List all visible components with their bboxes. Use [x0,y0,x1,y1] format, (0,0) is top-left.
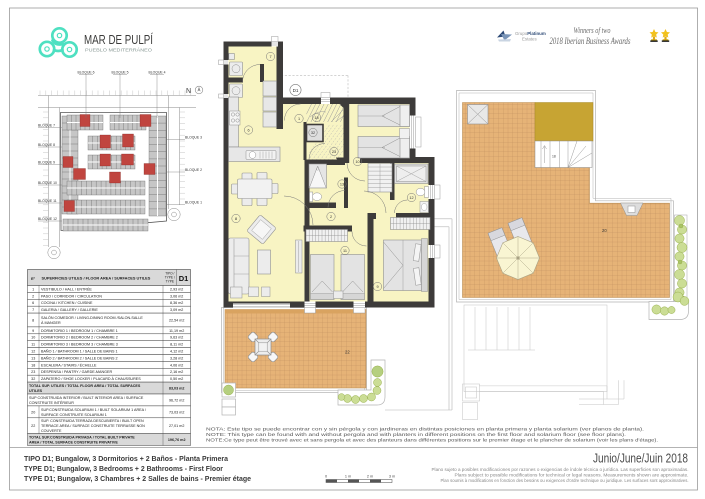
svg-text:10: 10 [31,336,35,340]
svg-text:TYPE D1; Bungalow, 3 Chambres: TYPE D1; Bungalow, 3 Chambres + 2 Salles… [24,476,251,483]
svg-text:2: 2 [32,294,34,298]
svg-text:Plano sujeto a posibles modifi: Plano sujeto a posibles modificaciones p… [432,467,689,472]
svg-text:DORMITORIO 1 / BEDROOM 1 / CHA: DORMITORIO 1 / BEDROOM 1 / CHAMBRE 1 [41,329,118,333]
svg-text:BLOQUE 3: BLOQUE 3 [185,136,202,140]
svg-text:DORMITORIO 2 / BEDROOM 2 / CHA: DORMITORIO 2 / BEDROOM 2 / CHAMBRE 2 [41,336,118,340]
svg-text:9: 9 [32,329,34,333]
svg-text:11,19 m2: 11,19 m2 [169,329,184,333]
svg-text:SUP CONSTRUIDA INTERIOR / BUIL: SUP CONSTRUIDA INTERIOR / BUILT INTERIOR… [29,396,144,400]
svg-text:SUP.CONSTRUIDA SOLARIUM 1 / BU: SUP.CONSTRUIDA SOLARIUM 1 / BUILT SOLARI… [41,408,147,412]
svg-text:D1: D1 [293,88,299,93]
svg-text:SALÓN COMEDOR / LIVING-DINING: SALÓN COMEDOR / LIVING-DINING ROOM /SALO… [41,315,143,320]
svg-text:UTILES: UTILES [29,389,43,393]
svg-text:PASO / CORRIDOR / CIRCULATION: PASO / CORRIDOR / CIRCULATION [41,294,102,298]
svg-text:11: 11 [31,343,35,347]
svg-text:À MANGER: À MANGER [41,321,61,325]
svg-text:BLOQUE 7: BLOQUE 7 [38,124,55,128]
svg-text:20: 20 [31,410,35,414]
svg-text:196,76 m2: 196,76 m2 [168,438,186,442]
svg-text:BAÑO 2 / BATHROOM 2 / SALLE DE: BAÑO 2 / BATHROOM 2 / SALLE DE BAINS 2 [41,355,118,360]
svg-text:ESCALERA / STAIRS / ÉCHELLE: ESCALERA / STAIRS / ÉCHELLE [41,362,97,367]
svg-text:TYPE D1; Bungalow, 3 Bedrooms: TYPE D1; Bungalow, 3 Bedrooms + 2 Bathro… [24,466,223,473]
svg-text:11: 11 [343,249,347,253]
svg-text:SURFACE CONSTRUITE SOLARIUM 1: SURFACE CONSTRUITE SOLARIUM 1 [41,413,107,417]
svg-text:22,54 m2: 22,54 m2 [169,318,184,322]
svg-text:COUVERTE: COUVERTE [41,429,62,433]
svg-text:12: 12 [31,349,35,353]
svg-text:COCINA / KITCHEN / CUISINE: COCINA / KITCHEN / CUISINE [41,301,93,305]
svg-text:9,63 m2: 9,63 m2 [170,336,183,340]
svg-text:SUPERFICIES UTILES / FLOOR ARE: SUPERFICIES UTILES / FLOOR AREA / SURFAC… [42,276,151,281]
svg-text:13: 13 [31,356,35,360]
svg-text:2,16 m2: 2,16 m2 [170,370,183,374]
svg-text:Plan soumis à modifications en: Plan soumis à modifications en fonction … [441,478,689,483]
svg-text:8,11 m2: 8,11 m2 [170,343,183,347]
svg-text:7: 7 [32,308,34,312]
svg-text:BLOQUE 8: BLOQUE 8 [38,143,55,147]
svg-text:1 m: 1 m [345,475,351,479]
svg-text:6: 6 [32,301,34,305]
svg-text:2: 2 [330,215,332,219]
svg-text:n°: n° [31,276,36,281]
svg-text:6: 6 [247,129,249,133]
svg-text:9: 9 [376,285,378,289]
svg-text:NOTA: Este tipo se puede encon: NOTA: Este tipo se puede encontrar con y… [206,427,644,432]
svg-text:10: 10 [355,160,359,164]
svg-text:BLOQUE 11: BLOQUE 11 [38,199,57,203]
svg-text:23: 23 [31,370,35,374]
svg-text:VESTIBULO / HALL / ENTRÉE: VESTIBULO / HALL / ENTRÉE [41,286,92,291]
svg-text:18: 18 [31,363,35,367]
svg-text:12: 12 [409,196,413,200]
svg-text:PUEBLO MEDITERRÁNEO: PUEBLO MEDITERRÁNEO [85,48,153,53]
svg-text:BLOQUE 2: BLOQUE 2 [185,168,202,172]
svg-text:8: 8 [32,318,34,322]
svg-text:Winners of two: Winners of two [574,26,611,35]
svg-text:ZAPATERO / SHOE LOCKER / PLACA: ZAPATERO / SHOE LOCKER / PLACARD À CHAUS… [41,377,141,381]
svg-text:DORMITORIO 3 / BEDROOM 3 / CHA: DORMITORIO 3 / BEDROOM 3 / CHAMBRE 3 [41,343,118,347]
svg-text:2,93 m2: 2,93 m2 [170,287,183,291]
svg-text:4,12 m2: 4,12 m2 [170,349,183,353]
svg-text:GrupoPlatinum: GrupoPlatinum [515,31,546,36]
svg-text:4,06 m2: 4,06 m2 [170,363,183,367]
svg-text:3 m: 3 m [389,475,395,479]
svg-text:1: 1 [32,287,34,291]
svg-text:18: 18 [314,116,318,120]
svg-text:3,09 m2: 3,09 m2 [170,308,183,312]
svg-text:18: 18 [552,155,556,159]
svg-text:Plans subject to possible modi: Plans subject to possible modifications … [455,473,689,478]
svg-text:D1: D1 [179,274,189,283]
svg-text:BLOQUE 6: BLOQUE 6 [78,71,95,75]
svg-text:TYPE: TYPE [166,280,174,284]
svg-text:8,36 m2: 8,36 m2 [170,301,183,305]
svg-text:BLOQUE 10: BLOQUE 10 [38,181,57,185]
svg-text:BLOQUE 5: BLOQUE 5 [112,71,129,75]
svg-text:22: 22 [345,350,350,355]
svg-text:TOTAL SUP. UTILES / TOTAL FLOO: TOTAL SUP. UTILES / TOTAL FLOOR AREA / T… [29,384,141,388]
svg-text:DESPENSA / PANTRY / GARDE-MANG: DESPENSA / PANTRY / GARDE-MANGER [41,370,112,374]
svg-text:1: 1 [298,117,300,121]
svg-text:3,28 m2: 3,28 m2 [170,356,183,360]
svg-text:BLOQUE 9: BLOQUE 9 [38,161,55,165]
svg-text:20: 20 [602,228,607,233]
svg-text:0: 0 [325,475,327,479]
svg-text:CONSTRUITE INTÉRIEUR: CONSTRUITE INTÉRIEUR [29,400,74,405]
svg-text:SUP. CONSTRUIDA TERRAZA DESCUB: SUP. CONSTRUIDA TERRAZA DESCUBIERTA / BU… [41,419,144,423]
svg-text:0,50 m2: 0,50 m2 [170,377,183,381]
svg-text:83,03 m2: 83,03 m2 [169,386,185,390]
svg-text:BLOQUE 4: BLOQUE 4 [149,71,166,75]
svg-text:AREA / TOTAL SURFACE CONSTRUIT: AREA / TOTAL SURFACE CONSTRUITE PRIVATIV… [29,440,118,444]
svg-text:96,72 m2: 96,72 m2 [169,398,184,402]
svg-text:32: 32 [31,377,35,381]
svg-text:BLOQUE 1: BLOQUE 1 [185,201,202,205]
svg-text:N: N [186,88,191,95]
svg-text:GALERIA / GALLERY / GALLERIE: GALERIA / GALLERY / GALLERIE [41,308,98,312]
svg-text:NOTE: This type can be found w: NOTE: This type can be found with and wi… [206,432,626,437]
svg-text:MAR DE PULPÍ: MAR DE PULPÍ [84,32,153,47]
svg-text:73,03 m2: 73,03 m2 [169,410,184,414]
svg-text:NOTE:Ce type peut être trouvé: NOTE:Ce type peut être trouvé avec et sa… [206,438,658,443]
svg-text:3,06 m2: 3,06 m2 [170,294,183,298]
svg-text:TERRACE AREA / SURFACE CONSTRU: TERRACE AREA / SURFACE CONSTRUITE TERRAS… [41,424,145,428]
svg-text:22: 22 [31,424,35,428]
svg-text:2 m: 2 m [367,475,373,479]
svg-text:32: 32 [311,131,315,135]
svg-text:TOTAL SUP.CONSTRUIDA PRIVADA /: TOTAL SUP.CONSTRUIDA PRIVADA / TOTAL BUI… [29,435,135,439]
svg-text:BAÑO 1 / BATHROOM 1 / SALLE DE: BAÑO 1 / BATHROOM 1 / SALLE DE BAINS 1 [41,348,118,353]
svg-text:Estates: Estates [522,36,537,41]
svg-text:13: 13 [340,183,344,187]
svg-text:TIPO D1; Bungalow, 3 Dormitori: TIPO D1; Bungalow, 3 Dormitorios + 2 Bañ… [24,456,228,463]
svg-text:Junio/June/Juin 2018: Junio/June/Juin 2018 [593,452,688,466]
svg-text:23: 23 [332,150,336,154]
svg-text:27,01 m2: 27,01 m2 [169,424,184,428]
svg-text:2018 Iberian Business Awards: 2018 Iberian Business Awards [550,36,631,46]
svg-text:BLOQUE 12: BLOQUE 12 [38,217,57,221]
svg-text:7: 7 [269,55,271,59]
